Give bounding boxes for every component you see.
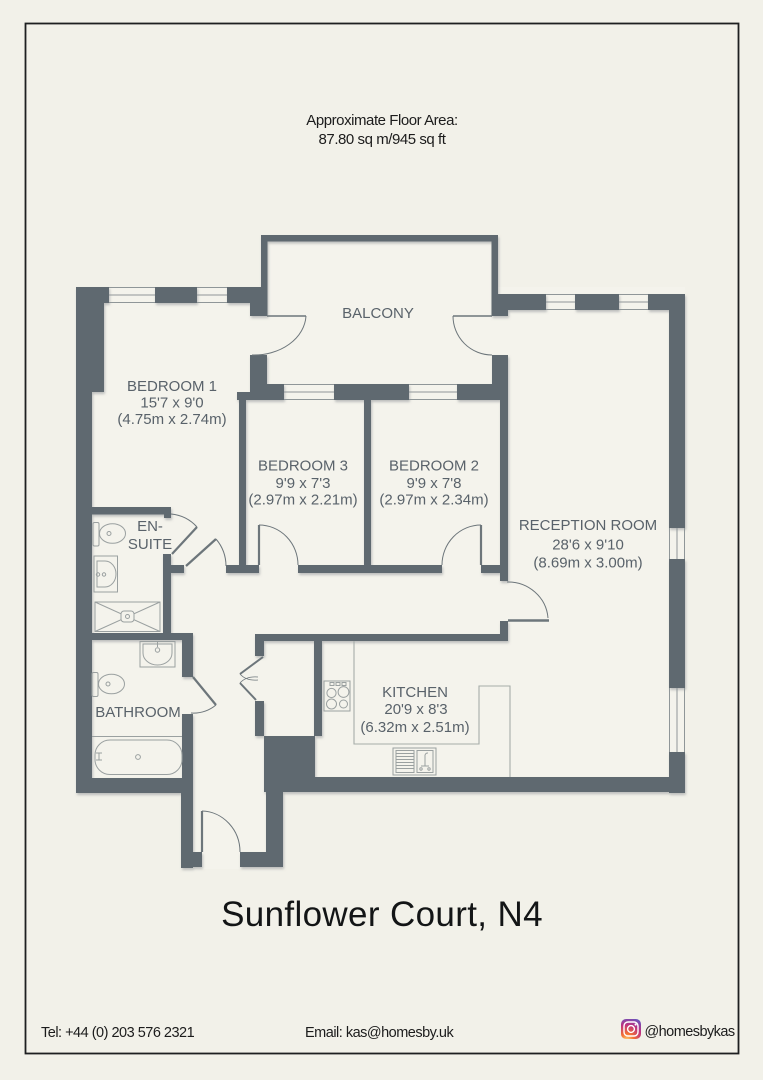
svg-text:SUITE: SUITE [128,536,172,553]
svg-text:BEDROOM 3: BEDROOM 3 [258,458,348,475]
svg-text:(2.97m x 2.34m): (2.97m x 2.34m) [379,492,488,509]
svg-text:Approximate Floor Area:: Approximate Floor Area: [306,112,457,129]
svg-text:RECEPTION ROOM: RECEPTION ROOM [519,517,657,534]
svg-text:20'9 x 8'3: 20'9 x 8'3 [384,701,447,718]
svg-text:@homesbykas: @homesbykas [645,1024,735,1040]
svg-text:9'9 x 7'8: 9'9 x 7'8 [407,475,462,492]
svg-text:BEDROOM 1: BEDROOM 1 [127,378,217,395]
svg-text:Sunflower Court, N4: Sunflower Court, N4 [221,895,543,934]
svg-text:(2.97m x 2.21m): (2.97m x 2.21m) [248,492,357,509]
svg-text:BATHROOM: BATHROOM [95,704,181,721]
svg-text:15'7 x 9'0: 15'7 x 9'0 [140,395,203,412]
svg-text:KITCHEN: KITCHEN [382,684,448,701]
svg-text:EN-: EN- [137,518,163,535]
svg-text:BALCONY: BALCONY [342,305,414,322]
svg-text:BEDROOM 2: BEDROOM 2 [389,458,479,475]
svg-text:Tel: +44 (0) 203 576 2321: Tel: +44 (0) 203 576 2321 [41,1025,195,1041]
svg-text:87.80 sq m/945 sq ft: 87.80 sq m/945 sq ft [319,131,447,148]
svg-text:(4.75m x 2.74m): (4.75m x 2.74m) [117,411,226,428]
svg-text:Email: kas@homesby.uk: Email: kas@homesby.uk [305,1025,454,1041]
svg-text:28'6 x 9'10: 28'6 x 9'10 [552,537,624,554]
svg-text:(8.69m x 3.00m): (8.69m x 3.00m) [533,555,642,572]
svg-text:9'9 x 7'3: 9'9 x 7'3 [276,475,331,492]
svg-text:(6.32m x 2.51m): (6.32m x 2.51m) [360,719,469,736]
